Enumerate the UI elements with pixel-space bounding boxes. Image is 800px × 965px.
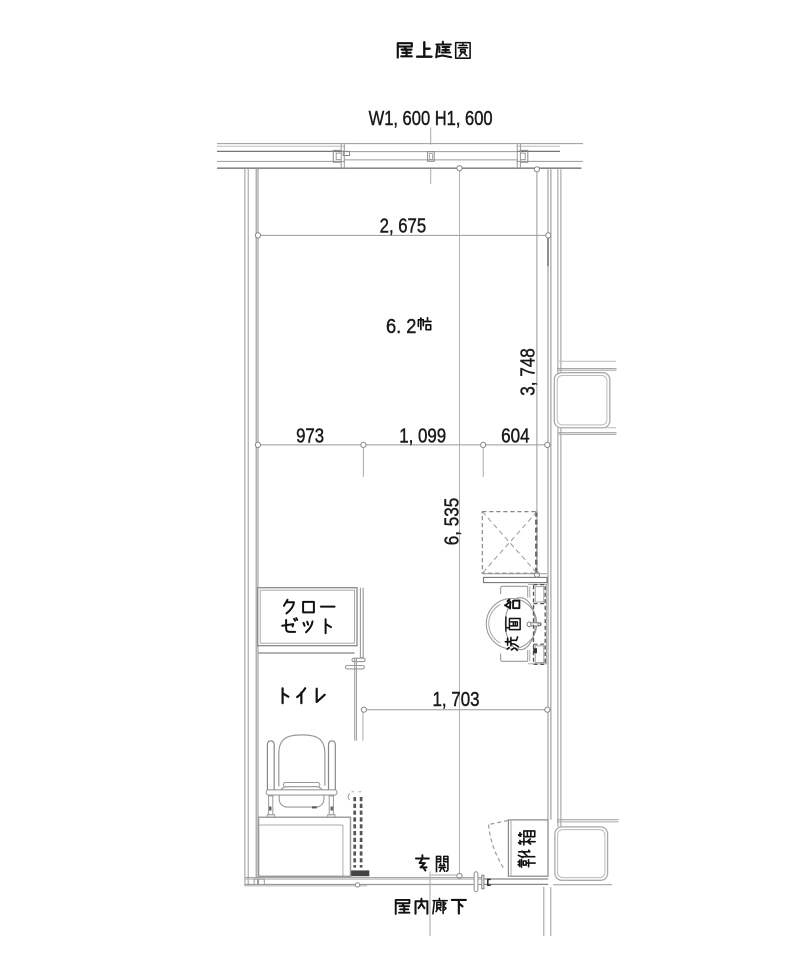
svg-text:6, 535: 6, 535 (440, 498, 463, 546)
svg-text:6. 2: 6. 2 (386, 315, 417, 338)
svg-text:3, 748: 3, 748 (516, 348, 539, 396)
svg-text:1, 099: 1, 099 (399, 424, 446, 447)
svg-text:W1, 600 H1, 600: W1, 600 H1, 600 (369, 107, 493, 130)
svg-text:1, 703: 1, 703 (433, 688, 480, 711)
svg-text:604: 604 (501, 424, 530, 447)
svg-text:973: 973 (296, 424, 324, 447)
svg-text:2, 675: 2, 675 (380, 215, 427, 238)
